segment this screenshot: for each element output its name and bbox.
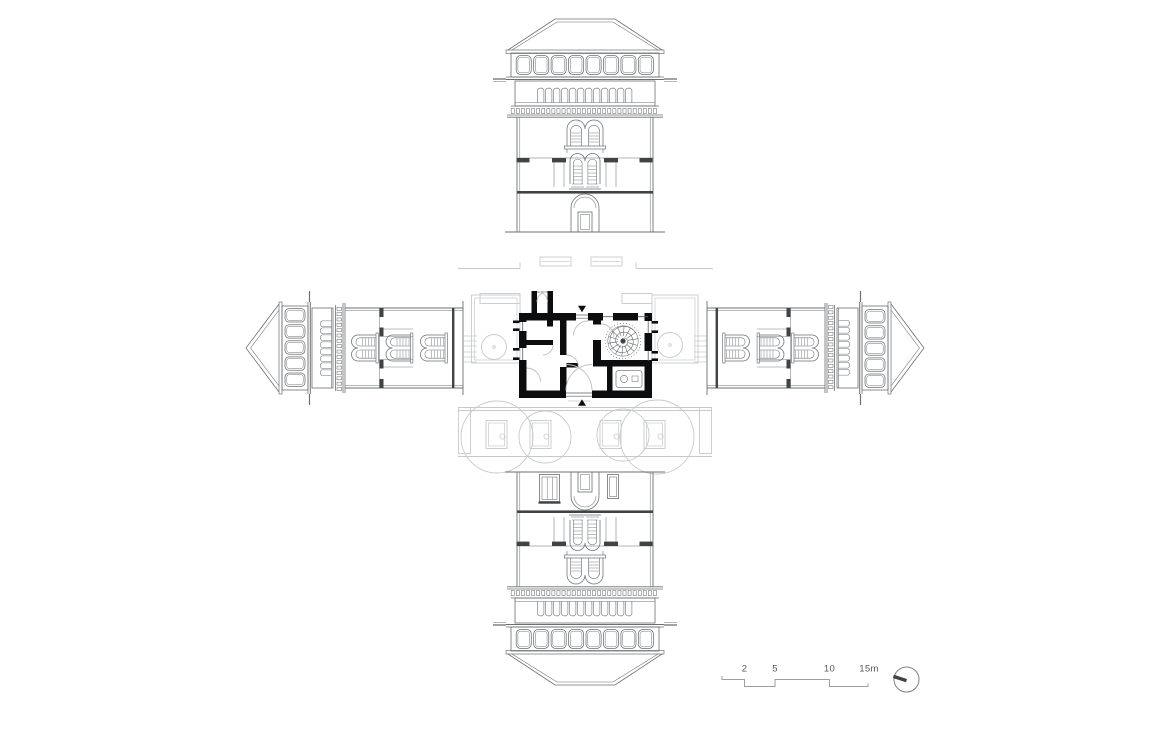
door-swing-arc — [527, 368, 541, 382]
arcade-colonnette — [839, 328, 850, 334]
plan-wall — [607, 367, 613, 391]
gallery-window-inner — [287, 342, 303, 352]
stair-tread — [618, 327, 622, 337]
gallery-window-inner — [588, 631, 600, 647]
arcade-colonnette — [618, 602, 624, 616]
stair-tread — [623, 326, 624, 336]
arcade-colonnette — [554, 602, 560, 616]
door-arch — [571, 496, 599, 510]
gallery-window-inner — [623, 631, 635, 647]
tree — [658, 333, 683, 358]
roof-inner-line — [891, 310, 920, 386]
arcade-colonnette — [538, 88, 544, 102]
biforium-light — [725, 338, 745, 346]
arcade-colonnette — [538, 602, 544, 616]
dentil — [603, 109, 606, 114]
site-boundary-step — [520, 262, 636, 269]
tree-large — [620, 400, 694, 474]
dentil — [648, 591, 651, 596]
terrace-inner — [475, 298, 518, 360]
plan-wall — [513, 328, 520, 331]
arcade-colonnette — [839, 356, 850, 362]
dentil — [608, 591, 611, 596]
tree-large — [519, 411, 571, 463]
arcade-colonnette — [320, 328, 331, 334]
dentil — [828, 327, 833, 330]
tree-large — [597, 409, 649, 461]
dentil — [337, 361, 342, 364]
door-arch-inner — [574, 496, 596, 507]
dentil — [557, 109, 560, 114]
string-course — [517, 191, 653, 194]
door-arch — [571, 194, 599, 208]
body-edge — [517, 472, 653, 587]
gallery-window-inner — [867, 343, 883, 353]
arcade-colonnette — [546, 602, 552, 616]
dentil — [653, 109, 656, 114]
dentil — [521, 109, 524, 114]
elevation-top — [493, 19, 677, 232]
door-panel — [581, 475, 590, 490]
pilaster-cap — [552, 158, 566, 162]
arcade-colonnette — [562, 88, 568, 102]
arcade-colonnette — [320, 349, 331, 355]
gallery-window-inner — [535, 631, 547, 647]
dentil — [532, 591, 535, 596]
arcade-colonnette — [839, 370, 850, 376]
dentil — [337, 313, 342, 316]
dentil — [828, 386, 833, 389]
window-sill — [723, 333, 725, 363]
gallery-window-inner — [867, 311, 883, 321]
dentil — [582, 109, 585, 114]
dentil — [643, 109, 646, 114]
eaves-band — [279, 302, 282, 394]
dentil — [516, 591, 519, 596]
arcade-colonnette — [320, 356, 331, 362]
dentil — [828, 364, 833, 367]
roof-outline — [508, 654, 662, 685]
gallery-band — [862, 306, 888, 390]
biforium-light — [573, 520, 582, 545]
dentil — [337, 323, 342, 326]
pilaster-cap — [604, 158, 618, 162]
dentil — [337, 371, 342, 374]
tree-large — [461, 401, 533, 473]
plan-wall — [532, 291, 538, 313]
arcade-colonnette — [578, 602, 584, 616]
plan-wall — [519, 331, 527, 348]
plan-wall — [513, 321, 520, 324]
roof-outline — [891, 304, 924, 392]
grid-window — [540, 475, 560, 502]
scale-label-2: 2 — [742, 664, 748, 675]
plan-wall — [588, 313, 603, 321]
gallery-window-inner — [605, 57, 617, 73]
biforium-light — [760, 338, 780, 346]
dentil — [608, 109, 611, 114]
elevation-right — [707, 291, 924, 405]
post-inner — [603, 423, 619, 446]
arcade-colonnette — [839, 335, 850, 341]
dentil — [623, 591, 626, 596]
narrow-window — [608, 475, 619, 499]
arcade-colonnette — [320, 335, 331, 341]
pilaster-cap — [552, 542, 566, 546]
scale-label-10: 10 — [824, 664, 835, 675]
window-sill — [411, 333, 413, 363]
scale-label-5: 5 — [772, 664, 778, 675]
biforium-light — [573, 159, 582, 184]
biforium-frame — [760, 335, 785, 361]
terrace — [652, 295, 698, 363]
dentil — [567, 591, 570, 596]
gallery-band — [511, 53, 659, 77]
biforium-frame — [352, 335, 377, 361]
post-inner — [489, 423, 505, 446]
biforium-light — [390, 350, 410, 358]
arcade-colonnette — [626, 602, 632, 616]
tree — [482, 335, 507, 360]
gallery-window-inner — [605, 631, 617, 647]
dentil — [828, 316, 833, 319]
gallery-window-inner — [867, 360, 883, 370]
dentil — [337, 350, 342, 353]
door-swing-arc — [543, 345, 553, 355]
dentil — [337, 382, 342, 385]
gallery-window-inner — [867, 376, 883, 386]
window-sill — [445, 333, 447, 363]
terrace-inner — [655, 298, 695, 360]
door-leaf — [578, 212, 592, 232]
plan-wall — [652, 358, 659, 361]
plan-wall — [560, 367, 567, 391]
pilaster-cap — [604, 542, 618, 546]
biforium-light — [425, 338, 445, 346]
plan-wall — [527, 340, 554, 345]
biforium-frame — [386, 335, 411, 361]
biforium-frame — [725, 335, 750, 361]
elevation-left — [246, 291, 463, 405]
dentil — [618, 591, 621, 596]
dentil — [526, 591, 529, 596]
scale-bar-line — [722, 676, 868, 687]
dentil — [643, 591, 646, 596]
arcade-colonnette — [320, 342, 331, 348]
biforium-light — [356, 350, 376, 358]
dentil — [628, 109, 631, 114]
biforium-light — [425, 350, 445, 358]
grid-window-inner — [542, 477, 557, 500]
biforium-light — [794, 338, 814, 346]
wc-tap — [632, 376, 638, 382]
plan-wall — [652, 321, 659, 324]
stair-tread — [625, 346, 629, 356]
tree-center — [669, 344, 672, 347]
dentil — [337, 377, 342, 380]
post-inner — [533, 423, 549, 446]
dentil — [577, 109, 580, 114]
stair-tread — [608, 342, 618, 344]
arcade-colonnette — [602, 88, 608, 102]
string-course — [716, 308, 718, 388]
dentil — [592, 591, 595, 596]
window-glazing — [537, 292, 648, 317]
elevation-bottom-extra-windows — [539, 475, 619, 504]
gallery-window-inner — [287, 375, 303, 385]
dentil — [828, 375, 833, 378]
pilaster-cap — [787, 328, 791, 337]
window-flare — [571, 517, 599, 520]
pilaster-cap — [517, 158, 530, 162]
arcade-colonnette — [570, 602, 576, 616]
gallery-window-inner — [623, 57, 635, 73]
elevation-bottom — [493, 472, 677, 685]
door-panel — [581, 215, 590, 230]
window-sill — [757, 333, 759, 363]
dentil — [526, 109, 529, 114]
drawing-line — [567, 551, 603, 555]
pilaster-cap — [380, 308, 384, 317]
pilaster — [554, 162, 616, 187]
window-sill — [376, 333, 378, 363]
arcade-band — [312, 308, 333, 388]
biforium-light — [356, 338, 376, 346]
arcade-colonnette — [586, 602, 592, 616]
drawing-line — [567, 149, 603, 153]
floor-plan — [513, 291, 658, 406]
plan-wall — [547, 321, 553, 327]
body-edge-inner — [520, 117, 650, 232]
dentil — [562, 109, 565, 114]
dentil — [623, 109, 626, 114]
pilaster-cap — [640, 158, 653, 162]
dentil — [828, 348, 833, 351]
door-leaf — [578, 472, 592, 492]
roof-outline — [246, 304, 279, 392]
plan-wall — [513, 348, 520, 351]
plan-wall — [645, 361, 653, 398]
roof-inner-line — [251, 310, 280, 386]
arcade-colonnette — [554, 88, 560, 102]
arcade-colonnette — [626, 88, 632, 102]
dentil — [542, 109, 545, 114]
dentil — [572, 591, 575, 596]
wc-basin — [620, 375, 627, 382]
arcade-colonnette — [839, 363, 850, 369]
pilaster-cap — [787, 379, 791, 388]
stair-tread — [622, 346, 623, 356]
dentil — [557, 591, 560, 596]
plan-wall — [652, 351, 659, 354]
eaves-band — [888, 302, 891, 394]
gallery-window-inner — [640, 631, 652, 647]
gallery-window-inner — [553, 57, 565, 73]
pilaster-cap — [787, 360, 791, 369]
dentil — [337, 355, 342, 358]
dentil — [547, 109, 550, 114]
pilaster-cap — [380, 360, 384, 369]
biforium-light — [571, 558, 582, 579]
plan-wall — [652, 330, 659, 333]
gallery-window-inner — [535, 57, 547, 73]
plan-wall — [519, 313, 576, 321]
compass-needle — [893, 676, 906, 680]
dentil — [572, 109, 575, 114]
dentil — [633, 109, 636, 114]
arcade-colonnette — [839, 321, 850, 327]
scale-label-15m: 15m — [859, 664, 878, 675]
arcade-colonnette — [320, 321, 331, 327]
site-line — [458, 408, 712, 457]
dentil — [638, 591, 641, 596]
tree-center — [493, 346, 496, 349]
north-compass-icon — [893, 667, 919, 692]
dentil — [516, 109, 519, 114]
gallery-window-inner — [287, 310, 303, 320]
pergola — [622, 294, 652, 304]
plan-wall — [613, 313, 638, 321]
string-course — [517, 510, 653, 513]
plan-wall — [519, 313, 527, 322]
arcade-colonnette — [562, 602, 568, 616]
dentil — [618, 109, 621, 114]
wall-stub — [700, 408, 712, 454]
window-sill — [565, 555, 606, 558]
arcade-colonnette — [610, 602, 616, 616]
pilaster-cap — [517, 542, 530, 546]
pilaster-cap — [787, 308, 791, 317]
dentil — [337, 307, 342, 310]
arcade-colonnette — [594, 88, 600, 102]
narrow-window-inner — [610, 477, 617, 497]
terrace — [472, 295, 521, 363]
arcade-colonnette — [602, 602, 608, 616]
dentil — [828, 370, 833, 373]
dentil — [337, 318, 342, 321]
plan-wall — [593, 340, 601, 360]
roof-inner-line — [512, 654, 658, 682]
gallery-window-inner — [640, 57, 652, 73]
drawing-canvas: 2 5 10 15m — [0, 0, 1170, 749]
dentil — [567, 109, 570, 114]
dentil — [552, 591, 555, 596]
dentil — [587, 109, 590, 114]
window-sill — [565, 146, 606, 149]
dentil — [613, 591, 616, 596]
dentil — [828, 354, 833, 357]
arcade-colonnette — [839, 342, 850, 348]
body-edge — [517, 117, 653, 232]
arcade-band — [837, 308, 858, 388]
dentil — [532, 109, 535, 114]
dentil — [828, 343, 833, 346]
biforium-light — [588, 520, 597, 545]
gallery-band — [282, 306, 308, 390]
biforium-light — [571, 125, 582, 146]
dentil — [337, 345, 342, 348]
dentil — [828, 359, 833, 362]
string-course — [452, 308, 454, 388]
dentil — [648, 109, 651, 114]
biforium-frame — [794, 335, 819, 361]
pilaster-cap — [640, 542, 653, 546]
biforium-light — [390, 338, 410, 346]
biforium-light — [794, 350, 814, 358]
gallery-window-inner — [518, 631, 530, 647]
dentil — [633, 591, 636, 596]
dentil — [638, 109, 641, 114]
dentil — [537, 109, 540, 114]
arcade-colonnette — [594, 602, 600, 616]
dentil — [577, 591, 580, 596]
dentil — [592, 109, 595, 114]
arcade-colonnette — [546, 88, 552, 102]
roof-inner-line — [512, 22, 658, 50]
plan-wall — [645, 333, 653, 351]
dentil — [511, 591, 514, 596]
dentil — [653, 591, 656, 596]
dentil — [613, 109, 616, 114]
dentil — [828, 380, 833, 383]
plan-wall — [548, 291, 554, 313]
roof-outline — [508, 19, 662, 50]
gallery-window-inner — [553, 631, 565, 647]
biforium-light — [588, 125, 599, 146]
arcade-colonnette — [570, 88, 576, 102]
dentil — [552, 109, 555, 114]
dentil — [598, 591, 601, 596]
pilaster-cap — [380, 379, 384, 388]
dentil — [562, 591, 565, 596]
dentil — [603, 591, 606, 596]
door-swing-arc — [574, 321, 589, 336]
plan-wall — [592, 391, 652, 399]
arcade-colonnette — [586, 88, 592, 102]
dentil — [587, 591, 590, 596]
arcade-colonnette — [578, 88, 584, 102]
dentil — [542, 591, 545, 596]
gallery-window-inner — [570, 631, 582, 647]
biforium-light — [760, 350, 780, 358]
gallery-window-inner — [287, 326, 303, 336]
gallery-window-inner — [287, 359, 303, 369]
dentil — [828, 306, 833, 309]
pilaster — [554, 517, 616, 542]
biforium-light — [588, 558, 599, 579]
arcade-colonnette — [320, 363, 331, 369]
dentil — [537, 591, 540, 596]
dentil — [337, 339, 342, 342]
dentil — [828, 338, 833, 341]
dentil — [628, 591, 631, 596]
dentil — [828, 322, 833, 325]
arcade-colonnette — [610, 88, 616, 102]
pilaster-cap — [380, 328, 384, 337]
plan-wall — [560, 321, 567, 356]
gallery-window-inner — [518, 57, 530, 73]
dentil — [337, 388, 342, 391]
biforium-light — [588, 159, 597, 184]
dentil — [337, 329, 342, 332]
gallery-band — [511, 627, 659, 651]
dentil — [598, 109, 601, 114]
window-sill-dark — [539, 502, 561, 504]
architectural-drawing: 2 5 10 15m — [0, 0, 1170, 749]
dentil — [547, 591, 550, 596]
dentil — [828, 332, 833, 335]
door-arch-inner — [574, 197, 596, 208]
